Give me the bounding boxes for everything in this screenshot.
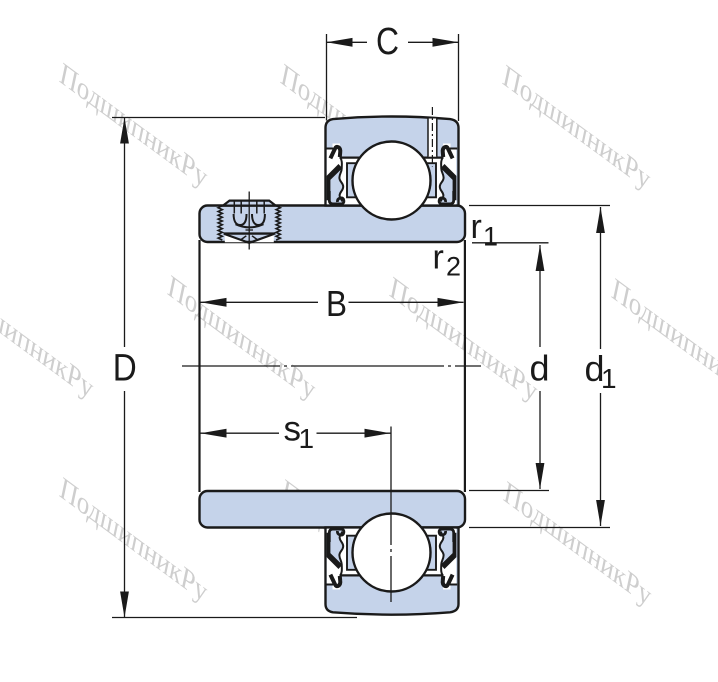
svg-text:D: D <box>113 348 137 390</box>
svg-text:r: r <box>433 239 444 277</box>
svg-text:2: 2 <box>446 252 461 282</box>
svg-text:d: d <box>530 348 550 389</box>
svg-text:1: 1 <box>483 222 498 252</box>
svg-text:B: B <box>326 283 347 324</box>
svg-text:1: 1 <box>299 423 315 454</box>
svg-text:C: C <box>376 21 399 63</box>
svg-text:1: 1 <box>601 363 617 394</box>
svg-text:r: r <box>471 208 482 246</box>
